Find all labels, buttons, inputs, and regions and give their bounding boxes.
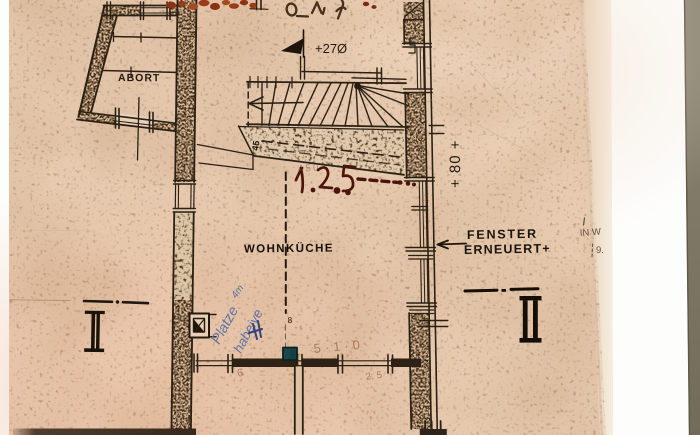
svg-text:FENSTER: FENSTER: [467, 227, 538, 242]
svg-text:WOHNKÜCHE: WOHNKÜCHE: [244, 242, 334, 256]
svg-text:+27Ø: +27Ø: [315, 41, 347, 56]
svg-text:IN W: IN W: [579, 227, 601, 239]
svg-text:45: 45: [250, 140, 261, 151]
svg-text:450: 450: [297, 162, 320, 175]
svg-text:9.: 9.: [596, 245, 604, 256]
svg-text:ERNEUERT+: ERNEUERT+: [464, 241, 551, 257]
svg-text:+ 80 +: + 80 +: [447, 139, 464, 188]
svg-text:8: 8: [288, 315, 293, 325]
svg-text:ABORT: ABORT: [118, 72, 160, 84]
